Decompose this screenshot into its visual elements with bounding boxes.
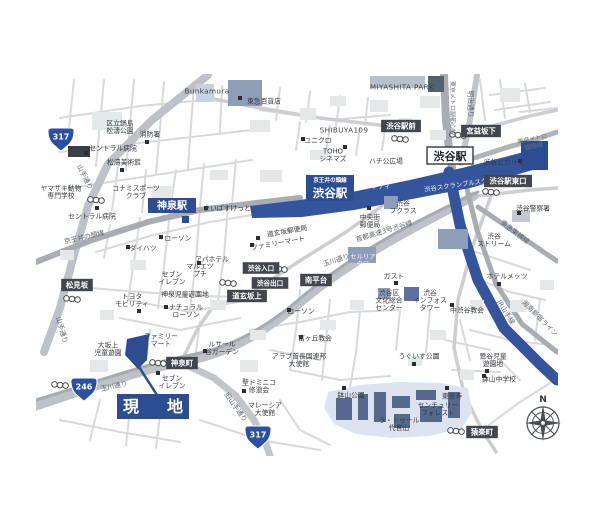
svg-text:フクラス: フクラス: [389, 207, 416, 215]
svg-text:モビリティ: モビリティ: [115, 299, 149, 308]
poi-label: ハチ公広場: [369, 156, 403, 165]
intersection-box: 渋谷駅東口: [484, 175, 532, 187]
poi-label: 松濤美術館: [107, 157, 141, 172]
svg-text:フォレスト: フォレスト: [421, 409, 455, 417]
poi-label: ローソン: [159, 234, 192, 242]
svg-text:Bunkamura: Bunkamura: [185, 86, 230, 95]
map-page: 明治通り東京メトロ副都心線東京メトロ銀座線東急東横線JR山手線湘南新宿ライン首都…: [0, 0, 600, 529]
shibuya-stream-building: [438, 229, 468, 249]
poi-label: Bunkamura: [185, 86, 230, 95]
poi-label: ナチュラルローソン: [164, 304, 203, 320]
shinsen-entrance-marker: [182, 216, 189, 223]
svg-text:まいばすけっと: まいばすけっと: [203, 203, 251, 212]
site-label-box: 現 地: [117, 394, 189, 419]
svg-text:渋谷駅前: 渋谷駅前: [386, 122, 416, 131]
svg-text:MIYASHITA PARK: MIYASHITA PARK: [370, 82, 434, 91]
compass-north-label: N: [539, 395, 547, 405]
crossing-dots: [392, 136, 409, 143]
crossing-dots: [220, 280, 237, 287]
crossing-dots: [88, 197, 105, 204]
svg-text:谷ガーデン: 谷ガーデン: [205, 347, 239, 356]
intersection-box: 猿楽町: [466, 426, 498, 438]
svg-text:シネマズ: シネマズ: [319, 154, 346, 163]
svg-text:東急百貨店: 東急百貨店: [247, 96, 281, 105]
intersection-box: 渋谷入口: [243, 262, 280, 274]
poi-label: TOHOシネマズ: [319, 145, 347, 163]
svg-text:渋谷出口: 渋谷出口: [257, 278, 283, 287]
svg-text:宮益坂下: 宮益坂下: [466, 127, 496, 136]
crossing-dots: [483, 189, 500, 196]
intersection-box: 道玄坂上: [227, 290, 267, 302]
svg-text:松見坂: 松見坂: [66, 281, 89, 290]
svg-text:猿楽町: 猿楽町: [470, 428, 494, 437]
poi-label: 区立鍋島松濤公園: [106, 119, 133, 136]
svg-text:317: 317: [250, 431, 267, 440]
poi-label: 渋谷区文化総合センター: [375, 288, 402, 312]
road-name-label: 東京メトロ副都心線: [449, 81, 457, 135]
poi-label: 大坂上児童遊園: [94, 341, 121, 358]
svg-text:道玄坂上: 道玄坂上: [232, 292, 262, 301]
svg-text:南平台: 南平台: [305, 276, 328, 285]
crossing-dots: [448, 428, 465, 435]
poi-label: 神泉児童遊園地: [161, 289, 209, 298]
svg-text:児童遊園: 児童遊園: [94, 348, 121, 357]
svg-text:郵便局: 郵便局: [360, 220, 381, 229]
svg-text:松濤公園: 松濤公園: [106, 126, 133, 135]
svg-text:ガスト: ガスト: [384, 271, 404, 280]
svg-text:シティ: シティ: [372, 182, 391, 190]
svg-text:セントラル病院: セントラル病院: [68, 211, 116, 220]
svg-text:ストリーム: ストリーム: [477, 240, 511, 248]
svg-text:246: 246: [76, 383, 93, 392]
svg-text:神泉町: 神泉町: [171, 359, 194, 368]
poi-label: 鶯谷児童遊園地: [479, 352, 506, 373]
poi-label: セントラル病院: [68, 206, 116, 220]
svg-text:渋谷警察署: 渋谷警察署: [516, 203, 550, 212]
svg-text:大使館: 大使館: [289, 359, 310, 368]
svg-text:ローソン: ローソン: [164, 234, 191, 242]
shibuya-area-map: 明治通り東京メトロ副都心線東京メトロ銀座線東急東横線JR山手線湘南新宿ライン首都…: [0, 0, 600, 529]
shinsen-station-box: 神泉駅: [148, 198, 196, 213]
svg-text:イレブン: イレブン: [158, 381, 185, 390]
svg-text:うぐいす公園: うぐいす公園: [399, 352, 440, 360]
poi-label: 渋谷ストリーム: [477, 232, 511, 249]
svg-text:渋谷駅東口: 渋谷駅東口: [490, 177, 527, 186]
svg-text:クラブ: クラブ: [126, 191, 147, 200]
svg-text:渋谷入口: 渋谷入口: [248, 263, 274, 272]
poi-label: ホテルメッツ: [487, 272, 528, 286]
poi-label: ユニクロ: [301, 136, 332, 144]
road-name-label: 明治通り: [467, 90, 476, 117]
svg-text:東京メトロ副都心線: 東京メトロ副都心線: [449, 81, 457, 135]
poi-label: ファミリーマート: [144, 333, 178, 349]
svg-text:タワー: タワー: [356, 259, 375, 268]
svg-text:マート: マート: [151, 340, 171, 348]
svg-text:ハチ公広場: ハチ公広場: [369, 156, 403, 165]
poi-label: SHIBUYA109: [320, 125, 369, 134]
poi-label: セブンイレブン: [158, 270, 185, 287]
svg-text:明治通り: 明治通り: [467, 90, 476, 117]
intersection-box: 渋谷駅前: [381, 120, 421, 132]
svg-text:ローソン: ローソン: [287, 307, 314, 315]
keio-line-label: 京王井の頭線: [313, 176, 347, 184]
poi-label: セントラル病院: [84, 143, 137, 155]
poi-label: ルサール谷ガーデン: [203, 341, 239, 357]
jr-shibuya-label: 渋谷駅: [434, 149, 467, 163]
svg-text:修道会: 修道会: [249, 385, 270, 394]
road-name-label: 山手通り: [54, 316, 70, 345]
svg-text:ユニクロ: ユニクロ: [304, 136, 331, 144]
poi-label: まいばすけっと: [203, 203, 251, 212]
svg-text:317: 317: [53, 133, 70, 142]
keio-shibuya-station-box: 京王井の頭線 渋谷駅: [306, 175, 354, 201]
svg-text:鉢山中学校: 鉢山中学校: [482, 374, 516, 383]
svg-text:センター: センター: [375, 303, 402, 312]
svg-text:中渋谷教会: 中渋谷教会: [450, 305, 484, 314]
poi-label: 富ヶ丘教会: [298, 333, 332, 342]
svg-text:松濤美術館: 松濤美術館: [107, 157, 141, 166]
svg-text:セントラル病院: セントラル病院: [89, 143, 137, 152]
crossing-dots: [52, 382, 69, 389]
svg-text:代官山: 代官山: [389, 423, 410, 432]
keio-shibuya-label: 渋谷駅: [313, 186, 348, 200]
svg-text:大使館: 大使館: [255, 408, 276, 417]
svg-text:山手通り: 山手通り: [54, 316, 70, 345]
intersection-box: 南平台: [300, 274, 332, 286]
poi-label: セブンイレブン: [156, 371, 186, 390]
svg-text:プチ: プチ: [193, 270, 207, 278]
svg-text:ホテルメッツ: ホテルメッツ: [487, 272, 528, 280]
poi-label: 聖ドミニコ修道会: [242, 379, 276, 395]
poi-label: アラブ首長国連邦大使館: [272, 352, 327, 369]
poi-label: ダイハツ: [126, 243, 157, 252]
poi-label: マルエツプチ: [186, 263, 213, 279]
poi-label: トヨタモビリティ: [115, 292, 149, 313]
svg-text:渋谷ヒカリエ: 渋谷ヒカリエ: [484, 157, 525, 166]
svg-text:SHIBUYA109: SHIBUYA109: [320, 125, 369, 134]
intersection-box: 宮益坂下: [461, 125, 501, 137]
compass-rose: N: [525, 395, 561, 441]
svg-text:ダイハツ: ダイハツ: [129, 243, 156, 252]
svg-text:イレブン: イレブン: [158, 277, 185, 286]
poi-label: ヤマザキ動物専門学校: [41, 184, 82, 201]
crossing-dots: [150, 360, 167, 367]
svg-text:専門学校: 専門学校: [47, 191, 74, 200]
svg-text:遊園地: 遊園地: [483, 359, 504, 368]
svg-text:東泉寺: 東泉寺: [442, 391, 463, 400]
shinsen-station-label: 神泉駅: [157, 199, 188, 212]
poi-label: ローソン: [287, 307, 315, 315]
svg-text:消防署: 消防署: [140, 129, 161, 138]
intersection-box: 松見坂: [61, 279, 93, 291]
svg-text:ローソン: ローソン: [172, 311, 199, 319]
intersection-box: 渋谷出口: [252, 277, 289, 289]
svg-text:富ヶ丘教会: 富ヶ丘教会: [298, 333, 332, 342]
poi-label: ガスト: [384, 271, 404, 285]
site-label: 現 地: [123, 397, 189, 416]
poi-label: センチュリーフォレスト: [418, 402, 459, 418]
crossing-dots: [64, 296, 81, 303]
svg-text:鉢山公園: 鉢山公園: [337, 390, 364, 399]
intersection-box: 神泉町: [166, 357, 198, 369]
svg-text:タワー: タワー: [420, 303, 441, 312]
poi-label: 鉢山中学校: [482, 374, 516, 383]
poi-label: 渋谷ヒカリエ: [484, 157, 525, 166]
jr-shibuya-station-box: 渋谷駅: [427, 147, 473, 164]
svg-text:神泉児童遊園地: 神泉児童遊園地: [161, 289, 209, 298]
poi-label: MIYASHITA PARK: [370, 82, 434, 91]
